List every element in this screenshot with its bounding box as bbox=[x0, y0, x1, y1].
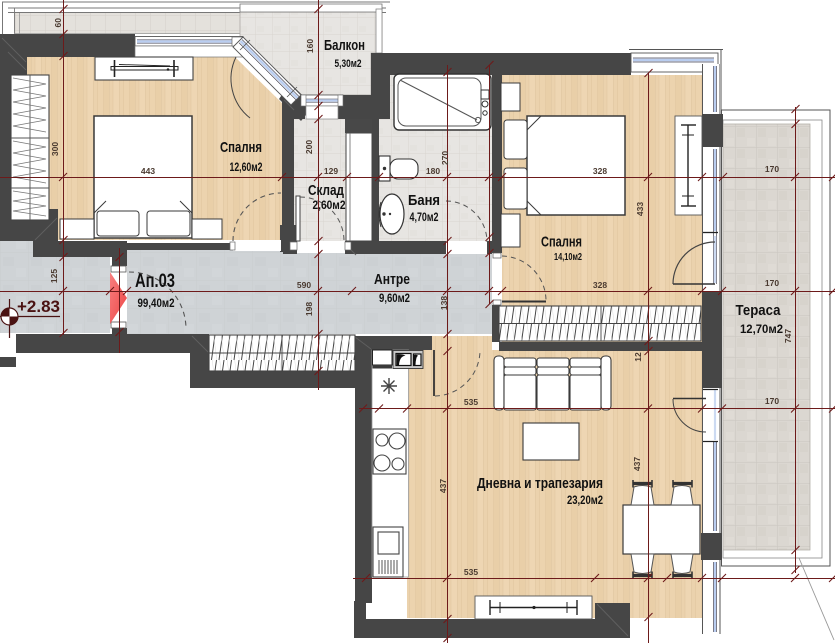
svg-text:60: 60 bbox=[53, 18, 63, 28]
svg-text:Баня: Баня bbox=[408, 192, 440, 209]
svg-text:Спалня: Спалня bbox=[220, 139, 262, 156]
svg-text:535: 535 bbox=[464, 397, 478, 407]
svg-text:9,60м2: 9,60м2 bbox=[379, 293, 410, 305]
svg-text:Ап.03: Ап.03 bbox=[135, 271, 175, 292]
svg-text:328: 328 bbox=[593, 166, 607, 176]
svg-text:170: 170 bbox=[765, 396, 779, 406]
svg-text:590: 590 bbox=[297, 280, 311, 290]
svg-text:5,30м2: 5,30м2 bbox=[335, 58, 362, 70]
svg-text:160: 160 bbox=[305, 39, 315, 53]
svg-text:Склад: Склад bbox=[308, 183, 344, 199]
svg-text:198: 198 bbox=[304, 302, 314, 316]
svg-text:129: 129 bbox=[324, 166, 338, 176]
svg-text:+2.83: +2.83 bbox=[17, 297, 60, 316]
svg-text:2,60м2: 2,60м2 bbox=[313, 200, 346, 212]
svg-text:14,10м2: 14,10м2 bbox=[554, 251, 582, 263]
svg-text:Антре: Антре bbox=[374, 271, 410, 288]
svg-text:443: 443 bbox=[141, 166, 155, 176]
svg-text:4,70м2: 4,70м2 bbox=[410, 212, 439, 224]
svg-text:300: 300 bbox=[50, 142, 60, 156]
svg-text:Дневна и трапезария: Дневна и трапезария bbox=[477, 475, 603, 492]
svg-text:328: 328 bbox=[593, 280, 607, 290]
svg-text:437: 437 bbox=[438, 479, 448, 493]
svg-text:200: 200 bbox=[304, 140, 314, 154]
svg-text:Балкон: Балкон bbox=[324, 38, 365, 54]
svg-text:180: 180 bbox=[426, 166, 440, 176]
svg-text:270: 270 bbox=[440, 151, 450, 165]
svg-text:Спалня: Спалня bbox=[541, 234, 582, 251]
svg-text:433: 433 bbox=[635, 202, 645, 216]
svg-text:170: 170 bbox=[765, 164, 779, 174]
svg-text:747: 747 bbox=[783, 329, 793, 343]
svg-text:437: 437 bbox=[632, 457, 642, 471]
svg-text:125: 125 bbox=[49, 269, 59, 283]
svg-text:Тераса: Тераса bbox=[736, 302, 782, 319]
svg-text:12,70м2: 12,70м2 bbox=[740, 324, 783, 336]
svg-text:535: 535 bbox=[464, 567, 478, 577]
svg-text:99,40м2: 99,40м2 bbox=[138, 298, 175, 310]
svg-text:12: 12 bbox=[633, 352, 643, 362]
svg-text:23,20м2: 23,20м2 bbox=[567, 495, 603, 507]
svg-text:138: 138 bbox=[439, 296, 449, 310]
svg-text:170: 170 bbox=[765, 278, 779, 288]
svg-text:12,60м2: 12,60м2 bbox=[230, 162, 263, 174]
